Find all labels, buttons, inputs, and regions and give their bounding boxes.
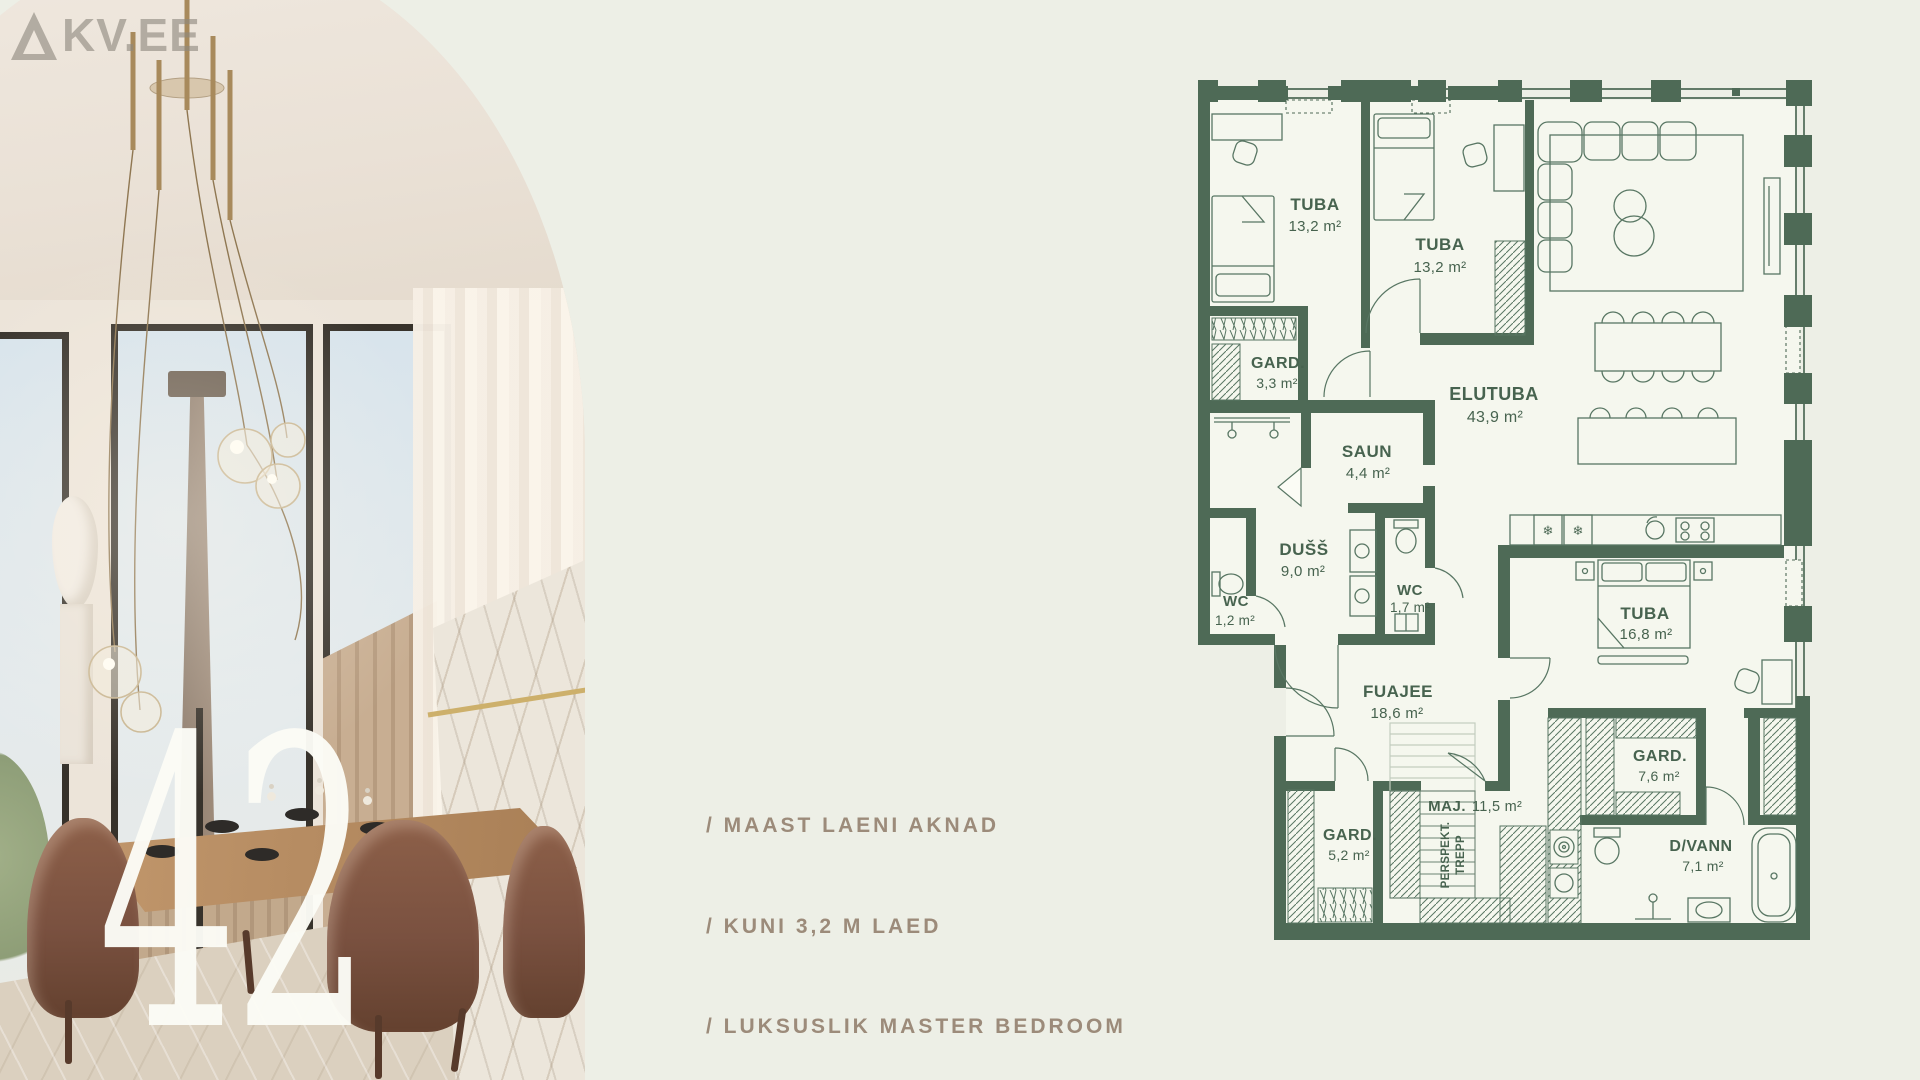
- feature-line: / KUNI 3,2 M LAED: [706, 910, 1126, 944]
- room-label-dushsh: DUŠŠ: [1279, 540, 1328, 559]
- svg-text:4,4 m²: 4,4 m²: [1346, 465, 1390, 482]
- room-label-elutuba: ELUTUBA: [1449, 384, 1539, 404]
- stairs-label-2: TREPP: [1455, 835, 1467, 875]
- room-label-tuba-3: TUBA: [1620, 604, 1669, 623]
- room-label-tuba-2: TUBA: [1415, 235, 1464, 254]
- svg-text:7,1 m²: 7,1 m²: [1682, 858, 1724, 874]
- room-label-saun: SAUN: [1342, 442, 1392, 461]
- stairs-label-1: PERSPEKT.: [1440, 822, 1452, 889]
- room-label-dvann: D/VANN: [1669, 838, 1732, 855]
- fridge-icon: ❄: [1573, 523, 1584, 538]
- room-label-fuajee: FUAJEE: [1363, 682, 1433, 701]
- room-label-wc-1: WC: [1223, 593, 1249, 610]
- feature-line: / MAAST LAENI AKNAD: [706, 809, 1126, 843]
- feature-list: / MAAST LAENI AKNAD / KUNI 3,2 M LAED / …: [706, 742, 1126, 1080]
- svg-text:16,8 m²: 16,8 m²: [1620, 626, 1673, 643]
- svg-text:1,2 m²: 1,2 m²: [1215, 613, 1255, 628]
- chair-leg: [375, 1015, 382, 1079]
- chair-leg: [65, 1000, 72, 1064]
- svg-text:9,0 m²: 9,0 m²: [1281, 563, 1325, 580]
- svg-text:13,2 m²: 13,2 m²: [1289, 218, 1342, 235]
- room-label-gard-2: GARD.: [1323, 827, 1377, 844]
- unit-number: 42: [98, 688, 367, 1080]
- svg-text:18,6 m²: 18,6 m²: [1371, 705, 1424, 722]
- room-label-gard-1: GARD.: [1251, 355, 1305, 372]
- kv-logo: KV.EE: [10, 8, 201, 62]
- room-label-wc-2: WC: [1397, 582, 1423, 599]
- svg-text:5,2 m²: 5,2 m²: [1328, 847, 1370, 863]
- house-icon: [10, 9, 58, 61]
- svg-text:1,7 m²: 1,7 m²: [1390, 600, 1430, 615]
- floor-plan: ❄ ❄ TUBA 13,2 m² TUBA 13,2 m² GARD. 3,3 …: [1198, 78, 1814, 946]
- freezer-icon: ❄: [1543, 523, 1554, 538]
- svg-text:7,6 m²: 7,6 m²: [1638, 768, 1680, 784]
- svg-text:11,5 m²: 11,5 m²: [1472, 799, 1522, 815]
- listing-canvas: 42 KV.EE / MAAST LAENI AKNAD / KUNI 3,2 …: [0, 0, 1920, 1080]
- room-label-tuba-1: TUBA: [1290, 195, 1339, 214]
- feature-line: / LUKSUSLIK MASTER BEDROOM: [706, 1010, 1126, 1044]
- logo-text: KV.EE: [62, 8, 201, 62]
- room-label-gard-3: GARD.: [1633, 748, 1687, 765]
- room-label-maj: MAJ.: [1428, 798, 1466, 815]
- svg-text:13,2 m²: 13,2 m²: [1414, 259, 1467, 276]
- svg-text:3,3 m²: 3,3 m²: [1256, 375, 1298, 391]
- svg-text:43,9 m²: 43,9 m²: [1467, 409, 1524, 426]
